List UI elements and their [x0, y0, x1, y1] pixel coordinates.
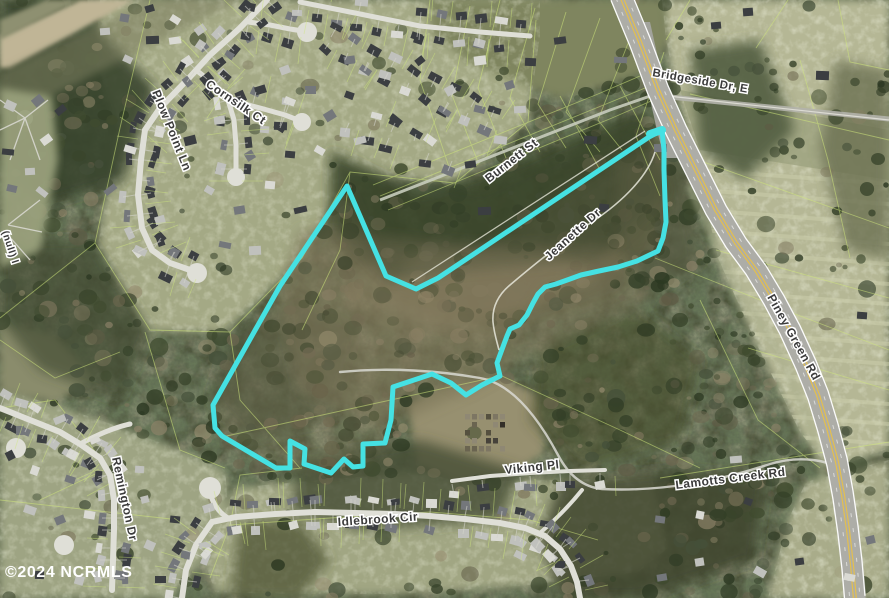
- svg-text:©2024 NCRMLS: ©2024 NCRMLS: [5, 564, 132, 581]
